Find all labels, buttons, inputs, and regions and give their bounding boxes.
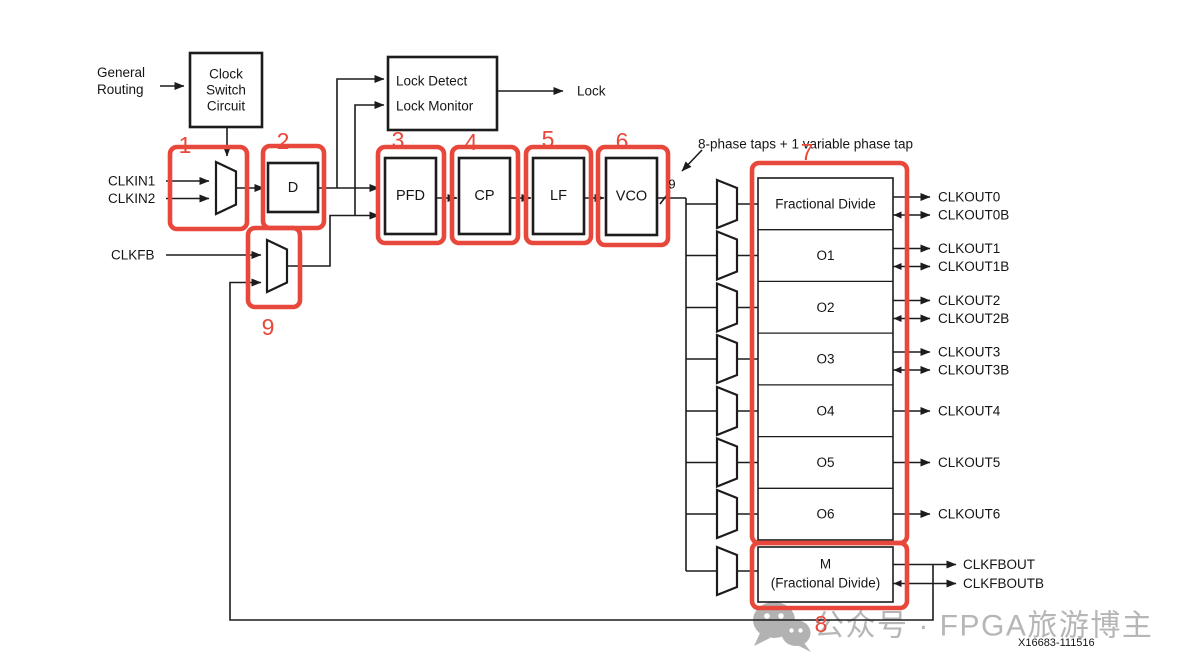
b-tap-arrow-2	[894, 315, 902, 322]
clkout2b-label: CLKOUT2B	[938, 311, 1009, 326]
marker-number-3: 3	[392, 127, 405, 153]
marker-number-4: 4	[465, 129, 478, 155]
marker-number-9: 9	[262, 314, 275, 340]
clkout0b-label: CLKOUT0B	[938, 208, 1009, 223]
clock-switch-label-line2: Switch	[206, 83, 246, 98]
b-tap-arrow-1	[894, 263, 902, 270]
marker-number-7: 7	[801, 139, 814, 165]
divider-row-label-0: Fractional Divide	[775, 197, 876, 212]
marker-number-8: 8	[815, 611, 828, 637]
clkout6-label: CLKOUT6	[938, 507, 1000, 522]
clkout3-label: CLKOUT3	[938, 345, 1000, 360]
lock-monitor-label: Lock Monitor	[396, 99, 474, 114]
d-divider-label: D	[288, 180, 298, 196]
marker-number-2: 2	[277, 128, 290, 154]
phase-mux-5	[717, 439, 737, 487]
phase-mux-6	[717, 490, 737, 538]
lock-output-label: Lock	[577, 84, 606, 99]
phase-mux-4	[717, 387, 737, 435]
m-divider-box	[758, 547, 893, 602]
clkfb-label: CLKFB	[111, 248, 155, 263]
phase-mux-1	[717, 232, 737, 280]
lock-detect-box	[388, 57, 497, 130]
divider-row-label-5: O5	[816, 455, 834, 470]
general-routing-label-line2: Routing	[97, 82, 144, 97]
clock-switch-label-line3: Circuit	[207, 99, 246, 114]
general-routing-label-line1: General	[97, 65, 145, 80]
clkout1-label: CLKOUT1	[938, 241, 1000, 256]
b-tap-arrow-0	[894, 212, 902, 219]
divider-row-label-4: O4	[816, 404, 835, 419]
clkfb-mux	[267, 240, 287, 292]
clkfboutb-label: CLKFBOUTB	[963, 576, 1044, 591]
phase-mux-3	[717, 335, 737, 383]
marker-number-6: 6	[616, 128, 629, 154]
phase-mux-2	[717, 284, 737, 332]
m-divider-label-line1: M	[820, 557, 831, 572]
pfd-label: PFD	[396, 188, 425, 204]
phase-taps-pointer	[682, 150, 702, 171]
clkout5-label: CLKOUT5	[938, 455, 1000, 470]
clock-switch-label-line1: Clock	[209, 67, 243, 82]
vco-bus-width-label: 9	[668, 177, 675, 192]
figure-id: X16683-111516	[1018, 637, 1095, 649]
clkout4-label: CLKOUT4	[938, 404, 1001, 419]
marker-number-1: 1	[179, 132, 192, 158]
phase-mux-0	[717, 180, 737, 228]
clkin-mux	[216, 162, 236, 214]
clkout1b-label: CLKOUT1B	[938, 259, 1009, 274]
clkfbout-label: CLKFBOUT	[963, 557, 1035, 572]
lf-label: LF	[550, 188, 567, 204]
lock-detect-label: Lock Detect	[396, 74, 468, 89]
divider-row-label-3: O3	[816, 352, 834, 367]
vco-label: VCO	[616, 189, 647, 205]
divider-row-label-6: O6	[816, 507, 834, 522]
marker-number-5: 5	[542, 126, 555, 152]
clkout3b-label: CLKOUT3B	[938, 363, 1009, 378]
clkout0-label: CLKOUT0	[938, 190, 1000, 205]
watermark-text: 公众号 · FPGA旅游博主	[814, 610, 1153, 643]
m-divider-label-line2: (Fractional Divide)	[771, 576, 881, 591]
divider-row-label-1: O1	[816, 248, 834, 263]
clkout2-label: CLKOUT2	[938, 293, 1000, 308]
divider-row-label-2: O2	[816, 300, 834, 315]
clkin2-label: CLKIN2	[108, 191, 155, 206]
mmcm-block-diagram-page: 公众号 · FPGA旅游博主	[0, 0, 1202, 670]
b-tap-arrow-3	[894, 367, 902, 374]
cp-label: CP	[474, 188, 494, 204]
mmcm-block-diagram: 公众号 · FPGA旅游博主	[0, 0, 1202, 670]
clkin1-label: CLKIN1	[108, 174, 155, 189]
phase-mux-7	[717, 547, 737, 595]
